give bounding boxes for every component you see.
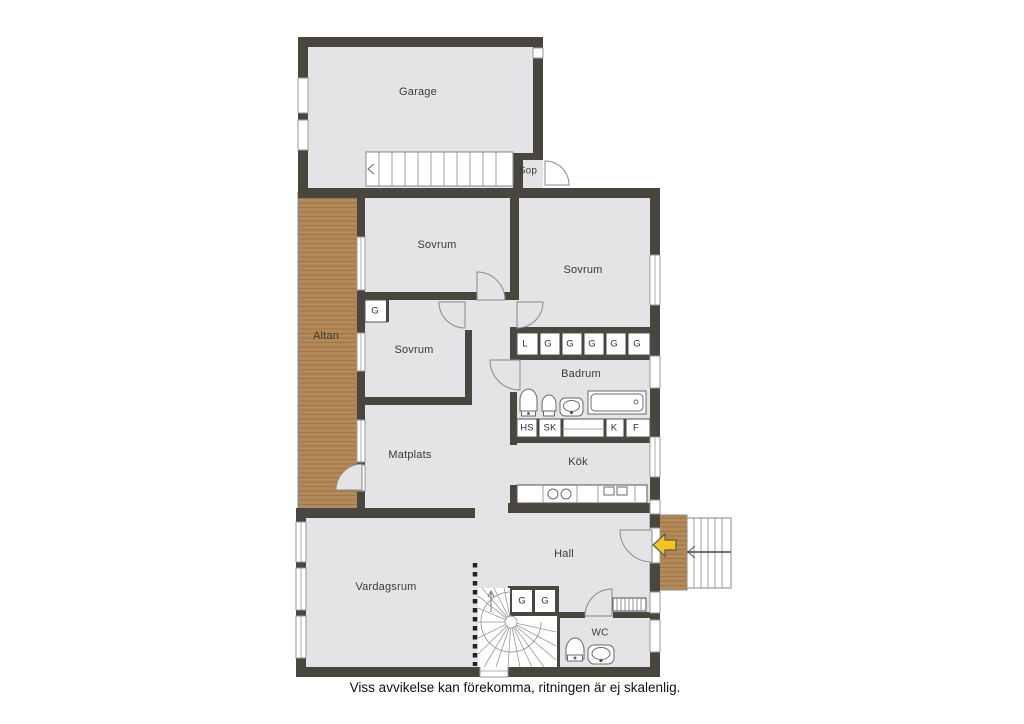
toilet-icon	[520, 389, 537, 411]
closet-label-g: G	[541, 596, 549, 607]
toilet2-icon	[542, 395, 556, 411]
kitchen-appliance-row	[517, 419, 650, 437]
appliance-label-f: F	[633, 423, 639, 434]
closet-label-l: L	[522, 339, 527, 350]
closet-label-g: G	[371, 306, 379, 317]
room-label-hall: Hall	[554, 548, 574, 560]
room-label-sovrum3: Sovrum	[394, 344, 433, 356]
room-label-garage: Garage	[399, 86, 437, 98]
room-label-wc: WC	[591, 628, 608, 639]
appliance-label-sk: SK	[543, 423, 556, 434]
radiator	[613, 598, 646, 611]
exterior-stairs	[687, 518, 731, 588]
floor-plan-svg	[0, 0, 1024, 724]
closet-label-g: G	[566, 339, 574, 350]
disclaimer-text: Viss avvikelse kan förekomma, ritningen …	[350, 680, 681, 695]
door-sop	[545, 161, 569, 185]
closet-label-g: G	[544, 339, 552, 350]
closet-label-g: G	[610, 339, 618, 350]
room-label-sovrum1: Sovrum	[417, 239, 456, 251]
room-label-vardagsrum: Vardagsrum	[355, 581, 416, 593]
kitchen-counter	[517, 485, 647, 503]
room-label-sop: Sop	[519, 166, 537, 177]
closet-label-g: G	[588, 339, 596, 350]
entry-closets	[508, 586, 559, 616]
room-label-matplats: Matplats	[388, 449, 431, 461]
closet-row-bedrooms	[517, 333, 650, 355]
floor-plan: Garage Sop Sovrum Sovrum Altan Sovrum Ba…	[0, 0, 1024, 724]
room-label-sovrum2: Sovrum	[563, 264, 602, 276]
room-label-kok: Kök	[568, 456, 588, 468]
altan-deck	[298, 192, 357, 508]
appliance-label-hs: HS	[520, 423, 534, 434]
appliance-label-k: K	[611, 423, 618, 434]
room-label-badrum: Badrum	[561, 368, 601, 380]
closet-label-g: G	[518, 596, 526, 607]
room-label-altan: Altan	[313, 330, 339, 342]
closet-label-g: G	[633, 339, 641, 350]
garage-ramp	[366, 152, 513, 186]
